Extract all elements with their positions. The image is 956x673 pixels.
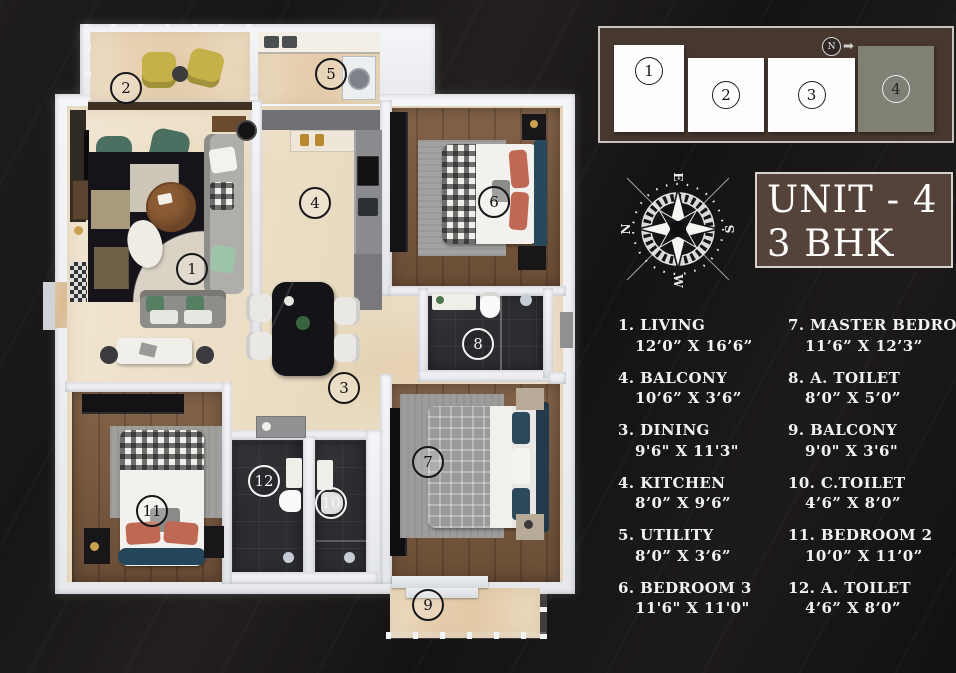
dining-dish [284, 296, 294, 306]
legend-item-number: 5. [618, 526, 634, 544]
master-duvet-white [490, 406, 512, 528]
toilet10-vanity [317, 460, 333, 490]
wall-master-top-right [548, 372, 566, 384]
room-number: 1 [187, 260, 197, 278]
entry-rug [70, 262, 87, 302]
room-number: 11 [142, 502, 161, 520]
wall-toilet8-left [418, 288, 428, 380]
room-number-marker: 10 [315, 487, 347, 519]
legend-item: 3. DINING 9'6" X 11'3" [618, 421, 753, 461]
unit-title: UNIT - 4 [767, 178, 951, 222]
room-number: 10 [321, 494, 340, 512]
legend-item-name: MASTER BEDROOM [810, 316, 956, 334]
legend-item-dimensions: 11'6" X 11'0" [618, 599, 753, 618]
master-nightstand-top [516, 388, 544, 410]
unit-title-box: UNIT - 4 3 BHK [755, 172, 953, 268]
legend-item-number: 12. [788, 579, 815, 597]
room-number-marker: 1 [176, 253, 208, 285]
legend-item: 11. BEDROOM 2 10’0” X 11’0” [788, 526, 956, 566]
wall-toilet8-right [543, 288, 553, 378]
floor-plan-poster: 1 2 3 4 5 6 7 8 9 10 11 12 1 2 3 4 N ➡ E… [0, 0, 956, 673]
legend-item-dimensions: 11’6” X 12’3” [788, 337, 956, 356]
locator-unit-box: 4 [858, 46, 934, 132]
bedroom3-pillow-red-2 [509, 191, 530, 230]
legend-item-number: 4. [618, 474, 634, 492]
legend-item-number: 1. [618, 316, 634, 334]
wall-bedroom2-top [65, 382, 232, 392]
desk-stool-left [100, 346, 118, 364]
room-number: 2 [121, 79, 131, 97]
locator-unit-number: 3 [798, 81, 826, 109]
room-number-marker: 8 [462, 328, 494, 360]
legend-item-dimensions: 9'0" X 3'6" [788, 442, 956, 461]
dining-chair-right-1 [334, 297, 360, 325]
room-number-marker: 5 [315, 58, 347, 90]
legend-item-number: 9. [788, 421, 804, 439]
room-number-marker: 3 [328, 372, 360, 404]
wall-toilets-right [366, 430, 382, 584]
bedroom3-wardrobe [390, 112, 408, 252]
legend-item: 4. KITCHEN 8’0” X 9’6” [618, 474, 753, 514]
legend-item: 7. MASTER BEDROOM 11’6” X 12’3” [788, 316, 956, 356]
toilet8-vanity-plant [436, 296, 444, 304]
room-number-marker: 7 [412, 446, 444, 478]
bedroom2-plaid-blanket [120, 430, 204, 470]
wall-toilets-bottom [222, 572, 378, 584]
legend-item: 4. BALCONY 10’6” X 3’6” [618, 369, 753, 409]
kitchen-jar-2 [315, 134, 324, 146]
living-window-band [88, 100, 252, 110]
legend-item-number: 4. [618, 369, 634, 387]
washing-machine-door [348, 68, 370, 90]
bedroom3-lamp-gold [530, 120, 538, 128]
legend-item-dimensions: 4’6” X 8’0” [788, 599, 956, 618]
legend-item-dimensions: 9'6" X 11'3" [618, 442, 753, 461]
bedroom3-pillow-red-1 [508, 149, 529, 188]
legend-item-number: 10. [788, 474, 815, 492]
cooktop [357, 156, 379, 186]
balcony-side-table [172, 66, 188, 82]
room-number-marker: 12 [248, 465, 280, 497]
legend-item-name: KITCHEN [640, 474, 725, 492]
bedroom2-lamp-gold [90, 542, 99, 551]
legend-item-name: DINING [640, 421, 710, 439]
kitchen-counter-right [354, 130, 382, 254]
legend-item-dimensions: 12’0” X 16’6” [618, 337, 753, 356]
toilet12-vanity [286, 458, 302, 488]
desk-stool-right [196, 346, 214, 364]
window-right-wall [560, 312, 573, 348]
room-number: 7 [423, 453, 433, 471]
room-number: 8 [473, 335, 483, 353]
hall-console-dish [262, 422, 271, 431]
loveseat-seat-1 [150, 310, 178, 324]
dining-chair-left-1 [246, 294, 272, 322]
compass-north-label: N [619, 223, 633, 234]
room-number: 6 [489, 193, 499, 211]
legend-item-number: 6. [618, 579, 634, 597]
toilet8-wc [480, 292, 500, 318]
speaker [236, 120, 257, 141]
dining-chair-left-2 [246, 332, 272, 360]
legend-item-name: LIVING [640, 316, 705, 334]
legend-item-number: 8. [788, 369, 804, 387]
bedroom3-headboard [534, 140, 547, 248]
legend-item-name: BALCONY [640, 369, 727, 387]
room-number-marker: 2 [110, 72, 142, 104]
legend-item: 9. BALCONY 9'0" X 3'6" [788, 421, 956, 461]
locator-unit-number: 4 [882, 75, 910, 103]
room-number: 4 [310, 194, 320, 212]
room-number-marker: 4 [299, 187, 331, 219]
kitchen-upper-cabinet [262, 110, 380, 130]
locator-unit-number: 1 [635, 57, 663, 85]
toilet10-shower-glass [316, 540, 368, 542]
sofa-pillow-plaid [210, 182, 234, 210]
bedroom3-plaid-blanket [442, 144, 476, 244]
legend-item-name: A. TOILET [821, 579, 911, 597]
locator-unit-number: 2 [712, 81, 740, 109]
utility-sink-right [282, 36, 297, 48]
wall-bedroom3-bottom [388, 286, 566, 296]
legend-item-dimensions: 8’0” X 3’6” [618, 547, 753, 566]
bedroom3-nightstand-bottom [518, 246, 546, 270]
room-number: 9 [423, 596, 433, 614]
compass-rose-icon: E N S W [617, 168, 739, 290]
kitchen-sink [358, 198, 378, 216]
balcony-9-railing-bottom [386, 632, 546, 639]
bedroom2-pillow-red-2 [163, 521, 199, 546]
legend-item: 12. A. TOILET 4’6” X 8’0” [788, 579, 956, 619]
north-indicator: N ➡ [822, 37, 854, 56]
utility-sink-left [264, 36, 279, 48]
north-label: N [822, 37, 841, 56]
master-pillow-navy-1 [512, 412, 530, 444]
legend-item: 1. LIVING 12’0” X 16’6” [618, 316, 753, 356]
toilet12-shower-head [283, 552, 294, 563]
balcony-armchair-yellow-1 [142, 52, 176, 88]
north-arrow-icon: ➡ [843, 40, 854, 53]
dining-centerpiece-plant [296, 316, 310, 330]
legend-item-dimensions: 8’0” X 9’6” [618, 494, 753, 513]
legend-item: 10. C.TOILET 4’6” X 8’0” [788, 474, 956, 514]
legend-item-number: 3. [618, 421, 634, 439]
unit-subtitle: 3 BHK [767, 222, 951, 266]
legend-item-dimensions: 4’6” X 8’0” [788, 494, 956, 513]
legend-item-name: BEDROOM 2 [821, 526, 933, 544]
legend-item-name: A. TOILET [810, 369, 900, 387]
locator-unit-box: 3 [768, 58, 855, 132]
legend-item-number: 11. [788, 526, 815, 544]
master-headboard [536, 402, 549, 532]
balcony-9-railing-right [540, 586, 547, 639]
room-number-marker: 9 [412, 589, 444, 621]
legend-item-dimensions: 8’0” X 5’0” [788, 389, 956, 408]
unit-locator-panel: 1 2 3 4 N ➡ [598, 26, 954, 143]
master-pillow-white [512, 448, 530, 484]
compass-east-label: E [671, 172, 685, 181]
legend-item-name: BEDROOM 3 [640, 579, 752, 597]
kitchen-jar-1 [300, 134, 309, 146]
toilet8-shower-glass [500, 292, 502, 370]
entry-door-opening [55, 282, 67, 328]
legend-item: 6. BEDROOM 3 11'6" X 11'0" [618, 579, 753, 619]
balcony-2-railing-top [84, 24, 254, 31]
legend-item-name: UTILITY [640, 526, 714, 544]
dining-chair-right-2 [334, 334, 360, 362]
floor-lamp-gold [74, 226, 83, 235]
loveseat-seat-2 [184, 310, 212, 324]
wall-toilets-divider [303, 436, 315, 578]
toilet10-shower-head [344, 552, 355, 563]
compass-south-label: S [723, 225, 737, 234]
balcony-9-step-upper [392, 576, 488, 588]
legend-item-name: C.TOILET [821, 474, 905, 492]
bedroom2-footboard-navy [118, 548, 206, 565]
bedroom2-nightstand-right [204, 526, 224, 558]
legend-item-dimensions: 10’0” X 11’0” [788, 547, 956, 566]
legend-item-number: 7. [788, 316, 804, 334]
legend-item: 5. UTILITY 8’0” X 3’6” [618, 526, 753, 566]
toilet12-wc [279, 490, 301, 512]
master-nightstand-decor [524, 520, 533, 529]
room-number-marker: 11 [136, 495, 168, 527]
toilet8-shower-head [520, 294, 532, 306]
legend-column-right: 7. MASTER BEDROOM 11’6” X 12’3” 8. A. TO… [788, 316, 956, 631]
sofa-pillow-mint [209, 244, 236, 273]
legend-item: 8. A. TOILET 8’0” X 5’0” [788, 369, 956, 409]
balcony-2-railing-left [84, 24, 91, 104]
legend-item-name: BALCONY [810, 421, 897, 439]
room-number: 12 [254, 472, 273, 490]
sofa-pillow-white [208, 146, 237, 174]
locator-unit-box: 2 [688, 58, 764, 132]
wall-toilet8-bottom [418, 370, 553, 382]
room-number: 3 [339, 379, 349, 397]
legend-item-dimensions: 10’6” X 3’6” [618, 389, 753, 408]
room-number: 5 [326, 65, 336, 83]
room-number-marker: 6 [478, 186, 510, 218]
bedroom2-wardrobe [82, 394, 184, 414]
locator-unit-box: 1 [614, 45, 684, 132]
legend-column-left: 1. LIVING 12’0” X 16’6” 4. BALCONY 10’6”… [618, 316, 753, 631]
compass-west-label: W [671, 273, 685, 288]
